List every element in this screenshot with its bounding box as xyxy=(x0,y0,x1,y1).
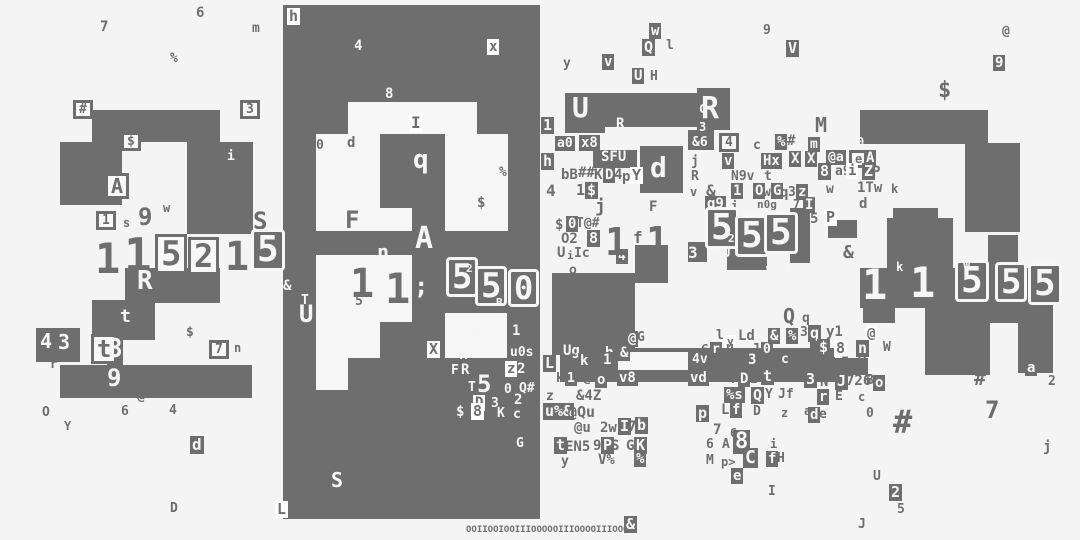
noise-glyph: J xyxy=(858,518,866,531)
noise-glyph: 4 xyxy=(546,183,556,199)
noise-glyph: EN5 xyxy=(565,440,590,454)
noise-glyph: $ xyxy=(186,326,194,339)
noise-glyph: $ xyxy=(938,80,951,102)
noise-glyph: 1 xyxy=(731,183,743,199)
noise-glyph: U xyxy=(299,302,313,326)
noise-glyph: d xyxy=(190,436,204,454)
noise-glyph: 1 xyxy=(605,223,628,261)
noise-glyph: t xyxy=(120,308,131,326)
noise-glyph: o xyxy=(595,372,607,388)
noise-glyph: n xyxy=(826,358,834,371)
noise-glyph: v xyxy=(722,153,734,169)
noise-block xyxy=(60,365,252,398)
noise-glyph: v xyxy=(602,54,614,70)
noise-glyph: 1 xyxy=(910,262,935,304)
noise-glyph: K xyxy=(594,168,602,182)
noise-glyph: O2 xyxy=(561,232,578,246)
noise-glyph: t xyxy=(761,368,774,385)
noise-glyph: u0s xyxy=(510,346,533,359)
noise-glyph: $ xyxy=(555,218,563,232)
noise-glyph: bB xyxy=(561,168,578,182)
noise-glyph: 0 xyxy=(866,407,874,420)
noise-glyph: o xyxy=(873,375,885,391)
noise-glyph: Ld xyxy=(738,329,755,343)
noise-glyph: 4 xyxy=(719,133,739,152)
noise-glyph: p xyxy=(696,405,709,422)
noise-glyph: 7 xyxy=(713,423,721,437)
noise-glyph: $ xyxy=(121,132,141,151)
noise-glyph: 4 xyxy=(40,331,52,351)
noise-glyph: U xyxy=(572,94,589,122)
noise-glyph: C xyxy=(743,448,758,468)
noise-glyph: m xyxy=(252,22,260,35)
noise-glyph: 3 xyxy=(746,352,758,368)
noise-glyph: 3 xyxy=(804,371,817,388)
noise-glyph: Q xyxy=(751,387,764,404)
noise-glyph: 3 xyxy=(58,332,70,352)
noise-glyph: D xyxy=(753,405,761,418)
noise-glyph: w xyxy=(963,258,970,270)
noise-block xyxy=(316,322,380,358)
noise-glyph: 9 xyxy=(993,55,1005,71)
noise-glyph: i xyxy=(846,163,858,179)
noise-glyph: k xyxy=(578,353,590,369)
noise-glyph: 8 xyxy=(385,87,393,101)
noise-glyph: Q xyxy=(783,306,795,326)
noise-glyph: Y xyxy=(765,388,773,401)
noise-glyph: 7 xyxy=(100,20,108,34)
noise-glyph: 8 xyxy=(587,230,600,247)
noise-glyph: V% xyxy=(598,453,615,467)
noise-glyph: h xyxy=(541,153,554,170)
noise-glyph: a xyxy=(1025,360,1037,376)
noise-glyph: R xyxy=(137,268,153,294)
noise-glyph: M xyxy=(815,115,827,135)
noise-block xyxy=(863,308,895,323)
noise-glyph: @ xyxy=(137,390,145,403)
noise-glyph: 1 xyxy=(541,117,554,134)
noise-glyph: 3 xyxy=(699,121,706,133)
noise-glyph: U xyxy=(557,246,565,260)
noise-block xyxy=(316,358,348,390)
noise-glyph: A xyxy=(474,326,482,339)
noise-glyph: 5 xyxy=(995,262,1027,302)
noise-glyph: F xyxy=(649,200,657,214)
noise-glyph: 1 xyxy=(510,323,522,339)
noise-glyph: S xyxy=(331,470,343,490)
noise-glyph: k xyxy=(556,372,564,385)
noise-glyph: 0 xyxy=(477,347,485,360)
noise-glyph: F xyxy=(345,208,359,232)
noise-glyph: D xyxy=(738,371,750,387)
noise-glyph: f xyxy=(633,230,643,246)
noise-glyph: c xyxy=(513,408,521,421)
noise-glyph: $ xyxy=(817,339,830,356)
noise-canvas: OOIIOOIOOIIIOOOOOIIIOOOOIIIOOO 76m%#3$iA… xyxy=(0,0,1080,540)
noise-glyph: k xyxy=(717,262,725,275)
noise-glyph: A xyxy=(722,438,730,451)
noise-glyph: N xyxy=(720,350,728,364)
noise-glyph: # xyxy=(974,368,986,388)
noise-glyph: 2 xyxy=(517,362,525,376)
noise-glyph: Jf xyxy=(778,388,794,401)
noise-glyph: 1 xyxy=(646,222,669,260)
noise-glyph: b xyxy=(635,417,648,434)
noise-glyph: 9 xyxy=(138,205,152,229)
noise-glyph: & xyxy=(283,279,291,293)
noise-block xyxy=(92,110,220,142)
noise-glyph: c xyxy=(753,139,761,152)
noise-glyph: & xyxy=(843,244,854,262)
noise-glyph: t xyxy=(764,170,772,183)
noise-glyph: Ic xyxy=(574,247,590,260)
noise-glyph: 7 xyxy=(985,398,999,422)
noise-glyph: C xyxy=(568,353,576,367)
noise-glyph: 5 xyxy=(764,212,798,254)
noise-glyph: y xyxy=(563,57,571,70)
noise-glyph: 0 xyxy=(316,139,324,152)
noise-block xyxy=(965,143,1020,232)
noise-glyph: c xyxy=(858,391,865,403)
noise-glyph: K xyxy=(497,407,505,420)
noise-glyph: X xyxy=(805,151,817,167)
noise-glyph: # xyxy=(893,406,912,438)
noise-glyph: E xyxy=(835,390,843,403)
noise-glyph: R xyxy=(616,117,624,131)
noise-glyph: r xyxy=(817,389,829,405)
noise-glyph: 5 xyxy=(446,257,478,297)
noise-glyph: i xyxy=(227,150,235,163)
noise-glyph: M xyxy=(706,454,714,467)
noise-glyph: i xyxy=(770,438,777,450)
noise-glyph: 4 xyxy=(354,39,362,53)
noise-glyph: A xyxy=(460,349,467,361)
noise-glyph: 7 xyxy=(793,198,800,210)
noise-glyph: U xyxy=(697,149,709,169)
noise-glyph: F xyxy=(451,364,459,377)
noise-glyph: 6 xyxy=(706,438,714,451)
noise-glyph: m xyxy=(808,137,820,152)
noise-glyph: % xyxy=(775,134,787,150)
noise-glyph: 5 xyxy=(810,212,818,226)
noise-glyph: T xyxy=(468,381,476,394)
noise-glyph: r xyxy=(50,358,57,370)
noise-glyph: 9 xyxy=(763,24,771,37)
noise-glyph: a0 xyxy=(555,136,575,151)
noise-glyph: % xyxy=(634,451,646,467)
noise-glyph: I xyxy=(409,114,423,132)
noise-glyph: 3 xyxy=(688,245,698,261)
noise-glyph: p> xyxy=(721,456,735,468)
noise-glyph: 2 xyxy=(1048,375,1056,388)
noise-glyph: 4 xyxy=(169,404,177,417)
noise-glyph: $ xyxy=(555,330,563,344)
noise-glyph: w xyxy=(163,202,170,214)
noise-glyph: 0 xyxy=(508,269,539,307)
noise-glyph: 1 xyxy=(862,264,887,306)
noise-glyph: SFU xyxy=(601,150,626,164)
noise-glyph: 1 xyxy=(96,211,116,230)
noise-glyph: 1 xyxy=(95,238,120,280)
noise-glyph: z xyxy=(505,361,517,377)
noise-glyph: o xyxy=(569,264,577,277)
noise-glyph: k xyxy=(891,183,898,195)
noise-glyph: z xyxy=(750,373,758,386)
noise-glyph: U xyxy=(632,68,644,84)
noise-glyph: % xyxy=(499,166,507,179)
noise-glyph: # xyxy=(787,134,795,148)
noise-glyph: d xyxy=(650,154,667,182)
noise-glyph: % xyxy=(170,52,178,65)
noise-glyph: H xyxy=(777,452,785,465)
noise-glyph: y xyxy=(561,455,569,468)
noise-glyph: 8 xyxy=(107,336,123,362)
noise-glyph: X xyxy=(427,341,440,358)
noise-glyph: 0 xyxy=(504,383,512,396)
noise-glyph: 5 xyxy=(897,503,905,516)
noise-glyph: l xyxy=(666,39,674,52)
noise-glyph: Y xyxy=(630,167,643,184)
noise-glyph: 8 xyxy=(818,163,831,180)
noise-glyph: 2 xyxy=(889,484,902,501)
noise-glyph: 6 xyxy=(196,6,204,20)
noise-glyph: P xyxy=(872,165,880,179)
noise-glyph: z xyxy=(781,407,788,419)
noise-glyph: D xyxy=(170,502,178,515)
noise-glyph: $ xyxy=(477,196,485,210)
noise-glyph: N xyxy=(820,375,828,389)
noise-glyph: v xyxy=(690,186,697,198)
noise-glyph: e xyxy=(819,408,827,421)
noise-glyph: ## xyxy=(578,166,595,180)
noise-glyph: 7 xyxy=(209,340,229,359)
noise-glyph: 2 xyxy=(514,393,522,407)
noise-glyph: R xyxy=(461,363,469,377)
noise-glyph: 0 xyxy=(857,136,864,148)
noise-glyph: n0g xyxy=(757,199,777,210)
noise-glyph: l xyxy=(716,329,724,342)
bottom-binary-strip: OOIIOOIOOIIIOOOOOIIIOOOOIIIOOO xyxy=(466,525,629,535)
noise-glyph: 5 xyxy=(1028,263,1062,305)
noise-glyph: 2 xyxy=(188,237,219,275)
noise-glyph: 5wY xyxy=(841,356,866,370)
noise-glyph: 1 xyxy=(225,237,249,277)
noise-glyph: A xyxy=(105,173,129,199)
noise-glyph: 1 xyxy=(385,268,410,310)
noise-glyph: I xyxy=(768,485,776,498)
noise-glyph: &4Z xyxy=(576,389,601,403)
noise-glyph: 1Tw xyxy=(857,181,882,195)
noise-glyph: y1 xyxy=(826,325,843,339)
noise-glyph: x xyxy=(487,39,499,55)
noise-block xyxy=(925,308,1053,323)
noise-glyph: @Qu xyxy=(568,405,595,420)
noise-glyph: V xyxy=(786,40,799,57)
noise-glyph: i xyxy=(567,250,574,261)
noise-glyph: 1 xyxy=(350,264,374,304)
noise-glyph: 5 xyxy=(155,234,187,274)
noise-glyph: 8 xyxy=(471,403,484,420)
noise-glyph: 6 xyxy=(121,405,129,418)
noise-glyph: 4v xyxy=(690,352,710,367)
noise-glyph: vd xyxy=(688,370,709,386)
noise-glyph: w xyxy=(826,183,834,196)
noise-glyph: B xyxy=(496,297,503,308)
noise-glyph: @ xyxy=(1002,25,1010,38)
noise-glyph: Q xyxy=(642,39,655,56)
noise-glyph: # xyxy=(789,353,797,366)
noise-glyph: S xyxy=(611,439,619,453)
noise-glyph: 2 xyxy=(728,233,735,244)
noise-glyph: %s xyxy=(724,387,745,403)
noise-glyph: Hx xyxy=(761,153,782,169)
noise-glyph: 5 xyxy=(251,229,285,271)
noise-block xyxy=(187,142,253,234)
noise-glyph: @u xyxy=(574,421,591,435)
noise-glyph: j xyxy=(1043,440,1051,454)
noise-glyph: U xyxy=(873,470,881,483)
noise-glyph: w xyxy=(649,23,661,39)
noise-glyph: q xyxy=(802,312,810,325)
noise-glyph: x8 xyxy=(579,135,600,151)
noise-glyph: 2w xyxy=(600,421,617,435)
noise-glyph: & xyxy=(618,345,630,361)
noise-glyph: e xyxy=(731,468,743,484)
noise-glyph: L xyxy=(275,501,288,518)
noise-glyph: L xyxy=(721,403,729,417)
noise-glyph: s@ xyxy=(575,372,591,385)
noise-glyph: G xyxy=(516,437,524,450)
noise-glyph: % xyxy=(786,328,798,344)
noise-glyph: H xyxy=(650,70,658,83)
noise-glyph: v8 xyxy=(617,370,638,386)
noise-glyph: 2 xyxy=(466,263,473,274)
noise-glyph: n xyxy=(234,342,241,354)
noise-glyph: j xyxy=(595,198,606,216)
noise-glyph: d xyxy=(859,197,867,211)
noise-glyph: e9 xyxy=(763,354,779,367)
noise-glyph: k xyxy=(896,261,903,273)
noise-glyph: ww xyxy=(766,263,779,274)
noise-glyph: ME xyxy=(593,332,610,346)
noise-glyph: $ xyxy=(456,405,464,419)
noise-glyph: G xyxy=(637,331,645,344)
noise-glyph: 5 xyxy=(955,260,989,302)
noise-glyph: 7 xyxy=(730,373,738,386)
noise-block xyxy=(860,110,988,144)
noise-glyph: N9v xyxy=(731,170,754,183)
noise-glyph: U xyxy=(722,246,730,260)
noise-glyph: 9 xyxy=(107,366,121,390)
noise-glyph: # xyxy=(73,100,93,119)
noise-glyph: P xyxy=(824,209,837,226)
noise-glyph: L xyxy=(543,355,556,372)
noise-glyph: 1 xyxy=(601,352,613,368)
noise-glyph: R xyxy=(691,170,699,183)
noise-glyph: X xyxy=(789,151,801,167)
noise-glyph: h xyxy=(287,8,300,25)
noise-glyph: A xyxy=(415,224,433,254)
noise-glyph: L xyxy=(786,264,793,276)
noise-glyph: ; xyxy=(414,274,428,298)
noise-glyph: q xyxy=(413,147,429,173)
noise-glyph: n xyxy=(377,242,389,262)
noise-glyph: O xyxy=(42,406,50,419)
noise-glyph: H xyxy=(492,325,500,338)
noise-glyph: 1 xyxy=(576,183,585,198)
noise-glyph: Y xyxy=(64,420,71,432)
noise-glyph: f xyxy=(730,402,742,418)
noise-glyph: W xyxy=(883,341,891,354)
noise-glyph: 5 xyxy=(477,372,491,396)
noise-glyph: & xyxy=(624,516,637,533)
noise-glyph: d xyxy=(347,136,355,150)
noise-glyph: 3 xyxy=(240,100,260,119)
